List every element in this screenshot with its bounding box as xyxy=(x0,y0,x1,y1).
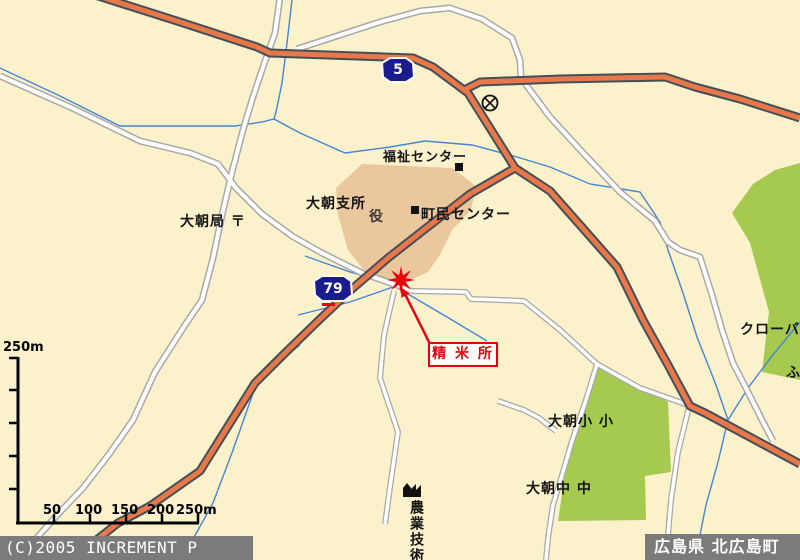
callout-arrow-icon xyxy=(401,287,430,344)
label-chomin-center: 町民センター xyxy=(421,204,511,224)
scale-tick-200: 200 xyxy=(147,503,174,518)
label-clover: クローバ xyxy=(740,319,800,339)
major-road-fills xyxy=(68,0,800,560)
scale-bar xyxy=(9,357,199,524)
label-fukushi-center: 福祉センター xyxy=(383,146,467,165)
region-bar: 広島県 北広島町 xyxy=(645,534,800,560)
scale-top-label: 250m xyxy=(3,340,44,355)
scale-tick-250: 250m xyxy=(176,503,217,518)
label-oasa-junior-high: 大朝中 中 xyxy=(526,478,592,498)
copyright-bar: (C)2005 INCREMENT P CORP. xyxy=(0,536,253,560)
label-oasa-elementary: 大朝小 小 xyxy=(548,411,614,431)
route79-red-tick xyxy=(322,303,335,306)
map-canvas[interactable]: 福祉センター 大朝支所 役 町民センター 大朝局 〒 クローバ ふ 大朝小 小 … xyxy=(0,0,800,560)
route79-shield-number: 79 xyxy=(315,281,351,297)
route5-shield-number: 5 xyxy=(383,62,413,78)
scale-tick-150: 150 xyxy=(111,503,138,518)
destination-star-icon xyxy=(387,266,415,294)
police-box-icon xyxy=(483,96,498,111)
destination-callout: 精 米 所 xyxy=(428,342,498,367)
scale-tick-100: 100 xyxy=(75,503,102,518)
map-graphics xyxy=(0,0,800,560)
factory-icon xyxy=(403,483,421,497)
minor-road-fills xyxy=(0,0,773,560)
label-oasa-post-office: 大朝局 〒 xyxy=(180,211,246,231)
label-oasa-branch: 大朝支所 xyxy=(306,193,366,213)
facility-square-icon xyxy=(411,206,419,214)
label-agri-tech: 農業技術 xyxy=(406,500,426,560)
label-fu: ふ xyxy=(786,362,800,382)
forest-polygon xyxy=(732,163,800,380)
label-yakuba: 役 xyxy=(369,206,384,226)
scale-tick-50: 50 xyxy=(43,503,61,518)
